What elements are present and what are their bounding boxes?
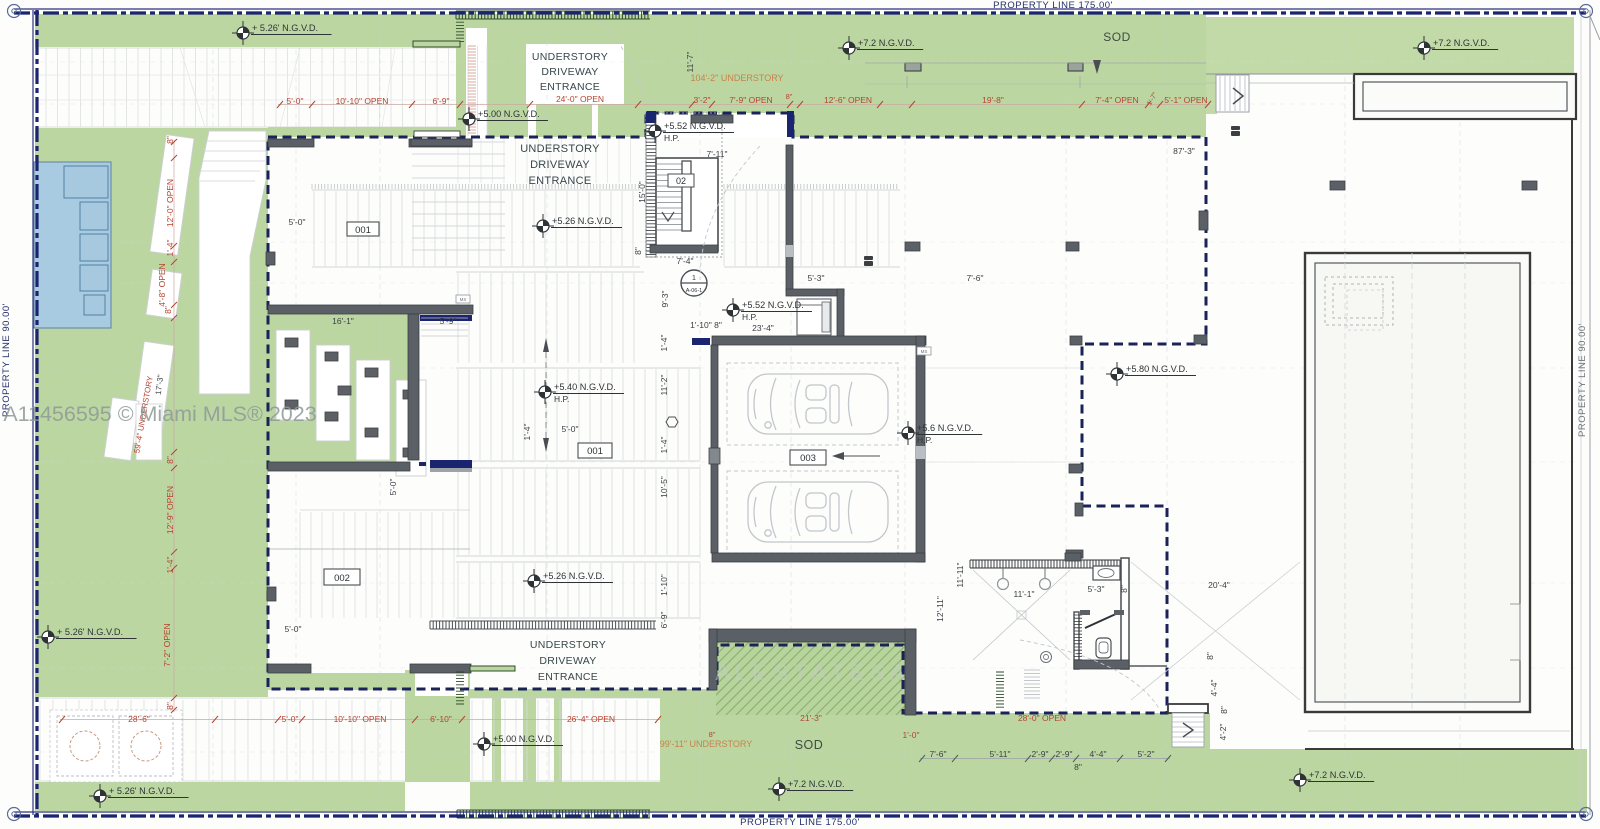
svg-text:5'-0": 5'-0" <box>287 96 304 106</box>
svg-text:A L E S T A T E S A: A L E S T A T E S A <box>715 660 905 685</box>
svg-text:ENTRANCE: ENTRANCE <box>529 175 592 187</box>
svg-text:7'-11": 7'-11" <box>706 149 727 159</box>
svg-text:DRIVEWAY: DRIVEWAY <box>539 655 596 667</box>
svg-text:SOD: SOD <box>1103 30 1131 44</box>
svg-text:PROPERTY LINE 175.00': PROPERTY LINE 175.00' <box>740 817 860 828</box>
svg-text:20'-4": 20'-4" <box>1208 580 1230 590</box>
svg-text:ENTRANCE: ENTRANCE <box>540 81 600 93</box>
svg-text:+5.00 N.G.V.D.: +5.00 N.G.V.D. <box>493 734 555 744</box>
svg-text:ENTRANCE: ENTRANCE <box>538 671 598 683</box>
svg-text:SOD: SOD <box>795 738 824 752</box>
svg-text:99'-11" UNDERSTORY: 99'-11" UNDERSTORY <box>660 739 752 749</box>
svg-text:UNDERSTORY: UNDERSTORY <box>520 143 600 155</box>
svg-text:7'-2" OPEN: 7'-2" OPEN <box>162 623 172 666</box>
svg-text:H.P.: H.P. <box>742 312 757 322</box>
svg-text:4'-4": 4'-4" <box>1090 749 1107 759</box>
svg-text:7'-6": 7'-6" <box>967 273 984 283</box>
svg-text:2'-9": 2'-9" <box>1056 749 1073 759</box>
svg-text:+ 5.26' N.G.V.D.: + 5.26' N.G.V.D. <box>109 786 175 796</box>
svg-text:12'-6" OPEN: 12'-6" OPEN <box>824 95 872 105</box>
svg-text:12'-11": 12'-11" <box>935 596 945 622</box>
svg-text:10'-10" OPEN: 10'-10" OPEN <box>334 714 387 724</box>
svg-text:8": 8" <box>165 456 175 464</box>
svg-text:8": 8" <box>1074 762 1082 772</box>
svg-text:1'-10": 1'-10" <box>659 574 669 596</box>
svg-text:11'-2": 11'-2" <box>659 374 669 395</box>
svg-text:002: 002 <box>334 573 350 584</box>
svg-text:9'-3": 9'-3" <box>660 291 670 308</box>
svg-text:8": 8" <box>786 92 793 101</box>
svg-text:003: 003 <box>800 453 816 464</box>
svg-text:H.P.: H.P. <box>554 394 569 404</box>
svg-text:19'-8": 19'-8" <box>982 95 1004 105</box>
svg-text:+5.52 N.G.V.D.: +5.52 N.G.V.D. <box>742 300 804 310</box>
svg-text:MS: MS <box>921 349 928 354</box>
svg-text:6'-9": 6'-9" <box>433 96 450 106</box>
svg-text:8": 8" <box>709 730 716 739</box>
svg-text:5'-11": 5'-11" <box>989 749 1010 759</box>
svg-text:5'-0": 5'-0" <box>289 217 306 227</box>
svg-text:+ 5.26' N.G.V.D.: + 5.26' N.G.V.D. <box>57 627 123 637</box>
svg-text:2'-9": 2'-9" <box>1032 749 1049 759</box>
svg-text:87'-3": 87'-3" <box>1173 146 1195 156</box>
svg-text:001: 001 <box>355 225 371 236</box>
svg-text:8": 8" <box>1219 706 1229 714</box>
svg-text:8": 8" <box>165 136 175 144</box>
svg-text:+5.40 N.G.V.D.: +5.40 N.G.V.D. <box>554 382 616 392</box>
svg-text:DRIVEWAY: DRIVEWAY <box>530 159 590 171</box>
svg-text:12'-0" OPEN: 12'-0" OPEN <box>165 179 175 227</box>
svg-text:PROPERTY LINE 90.00': PROPERTY LINE 90.00' <box>1577 323 1588 437</box>
svg-text:8": 8" <box>163 306 173 314</box>
svg-text:A-06-1: A-06-1 <box>686 288 703 294</box>
svg-text:4'-2": 4'-2" <box>1218 724 1228 741</box>
svg-text:8": 8" <box>165 702 175 710</box>
svg-text:PROPERTY LINE 90.00': PROPERTY LINE 90.00' <box>1 303 12 417</box>
svg-text:15'-0": 15'-0" <box>637 181 647 203</box>
svg-text:12'-9" OPEN: 12'-9" OPEN <box>165 486 175 534</box>
svg-text:24'-0" OPEN: 24'-0" OPEN <box>556 94 604 104</box>
svg-text:H.P.: H.P. <box>917 435 932 445</box>
svg-text:+7.2 N.G.V.D.: +7.2 N.G.V.D. <box>788 779 845 789</box>
svg-text:11'-11": 11'-11" <box>955 562 965 587</box>
svg-text:10'-10" OPEN: 10'-10" OPEN <box>336 96 389 106</box>
svg-text:10'-5": 10'-5" <box>659 476 669 498</box>
svg-text:5'-9": 5'-9" <box>440 316 457 326</box>
svg-text:1'-4": 1'-4" <box>659 437 669 454</box>
svg-text:6'-10": 6'-10" <box>430 714 452 724</box>
svg-text:1'-10" 8": 1'-10" 8" <box>690 320 722 330</box>
svg-text:4'-4": 4'-4" <box>1209 680 1219 697</box>
svg-text:8": 8" <box>633 247 643 255</box>
svg-text:28'-0" OPEN: 28'-0" OPEN <box>1018 713 1066 723</box>
svg-text:7'-6": 7'-6" <box>930 749 947 759</box>
svg-text:+5.26 N.G.V.D.: +5.26 N.G.V.D. <box>552 216 614 226</box>
svg-text:23'-4": 23'-4" <box>752 323 774 333</box>
svg-text:+ 5.26' N.G.V.D.: + 5.26' N.G.V.D. <box>252 23 318 33</box>
svg-text:001: 001 <box>587 446 603 457</box>
svg-text:+7.2 N.G.V.D.: +7.2 N.G.V.D. <box>1309 770 1366 780</box>
svg-text:11'-7": 11'-7" <box>685 51 695 72</box>
svg-text:7'-9" OPEN: 7'-9" OPEN <box>729 95 772 105</box>
svg-text:1'-4": 1'-4" <box>522 424 532 441</box>
svg-text:26'-4" OPEN: 26'-4" OPEN <box>567 714 615 724</box>
svg-text:UNDERSTORY: UNDERSTORY <box>530 639 606 651</box>
svg-text:DRIVEWAY: DRIVEWAY <box>541 66 598 78</box>
svg-text:7'-4" OPEN: 7'-4" OPEN <box>1095 95 1138 105</box>
svg-text:A11456595 © Miami MLS® 2023: A11456595 © Miami MLS® 2023 <box>3 402 316 426</box>
svg-text:104'-2" UNDERSTORY: 104'-2" UNDERSTORY <box>690 73 783 83</box>
svg-text:1'-4": 1'-4" <box>165 557 175 574</box>
svg-text:UNDERSTORY: UNDERSTORY <box>532 51 608 63</box>
svg-text:1'-0": 1'-0" <box>903 730 920 740</box>
svg-text:6'-9": 6'-9" <box>659 612 669 629</box>
svg-text:4'-8" OPEN: 4'-8" OPEN <box>157 263 167 306</box>
svg-text:7'-4": 7'-4" <box>677 256 694 266</box>
svg-text:1'-4": 1'-4" <box>659 335 669 352</box>
svg-text:5'-2": 5'-2" <box>1138 749 1155 759</box>
svg-text:+5.26 N.G.V.D.: +5.26 N.G.V.D. <box>543 571 605 581</box>
svg-text:+7.2 N.G.V.D.: +7.2 N.G.V.D. <box>858 38 915 48</box>
svg-text:+5.6 N.G.V.D.: +5.6 N.G.V.D. <box>917 423 974 433</box>
svg-text:PROPERTY LINE 175.00': PROPERTY LINE 175.00' <box>993 0 1113 11</box>
svg-text:5'-0": 5'-0" <box>282 714 299 724</box>
svg-text:+5.80 N.G.V.D.: +5.80 N.G.V.D. <box>1126 364 1188 374</box>
svg-text:11'-1": 11'-1" <box>1013 589 1034 599</box>
svg-text:21'-3": 21'-3" <box>800 713 822 723</box>
svg-text:+5.00 N.G.V.D.: +5.00 N.G.V.D. <box>478 109 540 119</box>
svg-text:1'-4": 1'-4" <box>165 240 175 257</box>
svg-text:02: 02 <box>676 176 686 186</box>
svg-text:H.P.: H.P. <box>664 133 679 143</box>
svg-text:+7.2 N.G.V.D.: +7.2 N.G.V.D. <box>1433 38 1490 48</box>
svg-text:+5.52 N.G.V.D.: +5.52 N.G.V.D. <box>664 121 726 131</box>
svg-text:5'-0": 5'-0" <box>388 479 398 496</box>
svg-text:5'-1" OPEN: 5'-1" OPEN <box>1164 95 1207 105</box>
svg-text:1: 1 <box>692 275 696 282</box>
svg-text:3'-2": 3'-2" <box>694 95 711 105</box>
svg-text:5'-0": 5'-0" <box>285 624 302 634</box>
svg-text:16'-1": 16'-1" <box>332 316 354 326</box>
svg-text:8": 8" <box>1205 652 1215 660</box>
svg-text:MS: MS <box>460 297 467 302</box>
svg-text:5'-0": 5'-0" <box>562 424 579 434</box>
svg-text:28'-6": 28'-6" <box>128 714 150 724</box>
svg-text:5'-3": 5'-3" <box>1088 584 1105 594</box>
svg-text:8": 8" <box>1119 585 1129 593</box>
svg-text:5'-3": 5'-3" <box>808 273 825 283</box>
